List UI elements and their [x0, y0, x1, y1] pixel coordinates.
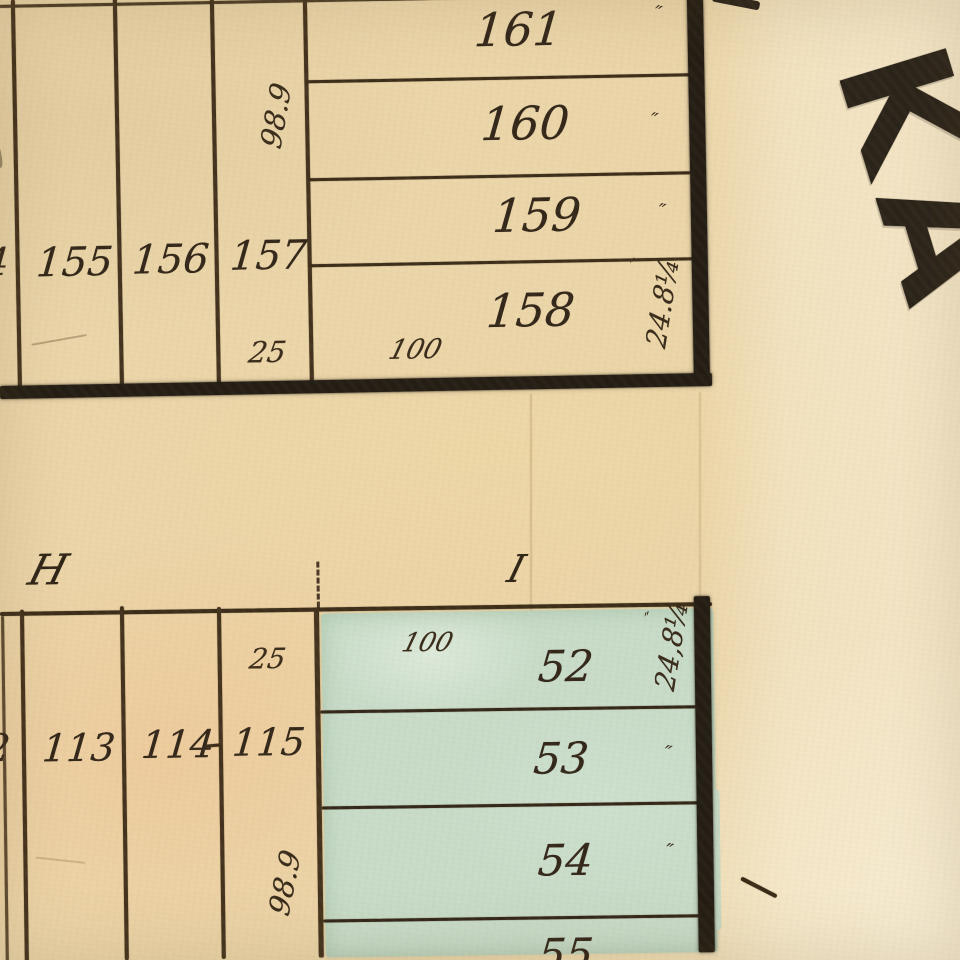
- front-width-25-bottom: 25: [240, 642, 295, 676]
- lot-number-157: 157: [227, 232, 311, 280]
- street-name-letters: KA: [813, 30, 960, 334]
- block-h-i-dashed-separator: [316, 562, 320, 608]
- lot-number-158: 158: [468, 282, 593, 338]
- lot112-113-boundary: [20, 610, 29, 960]
- lot-number-113: 113: [37, 725, 121, 770]
- row-length-100-top: 100: [371, 334, 459, 367]
- ink-fragment-left-edge-2: [0, 146, 3, 169]
- lot-number-154-partial: 4: [0, 240, 11, 285]
- block-label-i: I: [485, 546, 547, 591]
- lot-number-52: 52: [504, 641, 629, 693]
- lot154-155-boundary: [11, 0, 22, 390]
- lot-number-115: 115: [227, 720, 311, 765]
- ditto-mark-161: ″: [652, 0, 664, 25]
- lot-number-55: 55: [504, 929, 629, 960]
- lot157-158-boundary: [303, 0, 314, 384]
- block-label-h: H: [7, 545, 90, 595]
- top-block: 4 155 156 157 25 98.9 161 160 159 158 10…: [0, 0, 730, 408]
- stray-ink-mark: [740, 877, 777, 899]
- top-block-south-street-border: [0, 373, 712, 399]
- lot161-160-boundary: [306, 73, 692, 83]
- lot-number-54: 54: [503, 835, 628, 887]
- lot160-159-boundary: [308, 171, 694, 181]
- lot-number-161: 161: [456, 1, 581, 57]
- lot113-114-boundary: [120, 606, 129, 960]
- ink-fragment-left-edge-1: [0, 46, 1, 72]
- row-length-100-bottom: 100: [383, 627, 471, 658]
- ditto-mark-159: ″: [656, 198, 668, 223]
- lot-number-155: 155: [33, 239, 117, 287]
- lot-number-112-partial: 2: [0, 726, 12, 770]
- lot-number-156: 156: [129, 236, 213, 284]
- east-width-top: 24.8¼: [640, 278, 682, 352]
- lot155-156-boundary: [113, 0, 124, 388]
- front-width-25-top: 25: [240, 335, 295, 370]
- ditto-mark-160: ″: [648, 107, 660, 132]
- lot-number-160: 160: [463, 95, 588, 151]
- plat-map-scan: 4 155 156 157 25 98.9 161 160 159 158 10…: [0, 0, 960, 960]
- top-block-east-street-border: [687, 0, 710, 379]
- side-depth-98-9-bottom: 98.9: [262, 847, 307, 920]
- lot-number-159: 159: [475, 187, 600, 243]
- lot114-115-boundary: [217, 607, 226, 959]
- lot156-157-boundary: [210, 0, 221, 386]
- pencil-scratch-top: [31, 334, 86, 346]
- pencil-scratch-bottom: [35, 856, 85, 863]
- lot112-edge-line: [1, 616, 9, 960]
- top-block-north-line: [0, 0, 705, 8]
- side-depth-98-9-top: 98.9: [254, 80, 298, 152]
- bottom-blocks: H I 2 113 114 115 25 98.9 100 52 53 54 5…: [0, 550, 750, 960]
- lot-number-53: 53: [499, 733, 624, 785]
